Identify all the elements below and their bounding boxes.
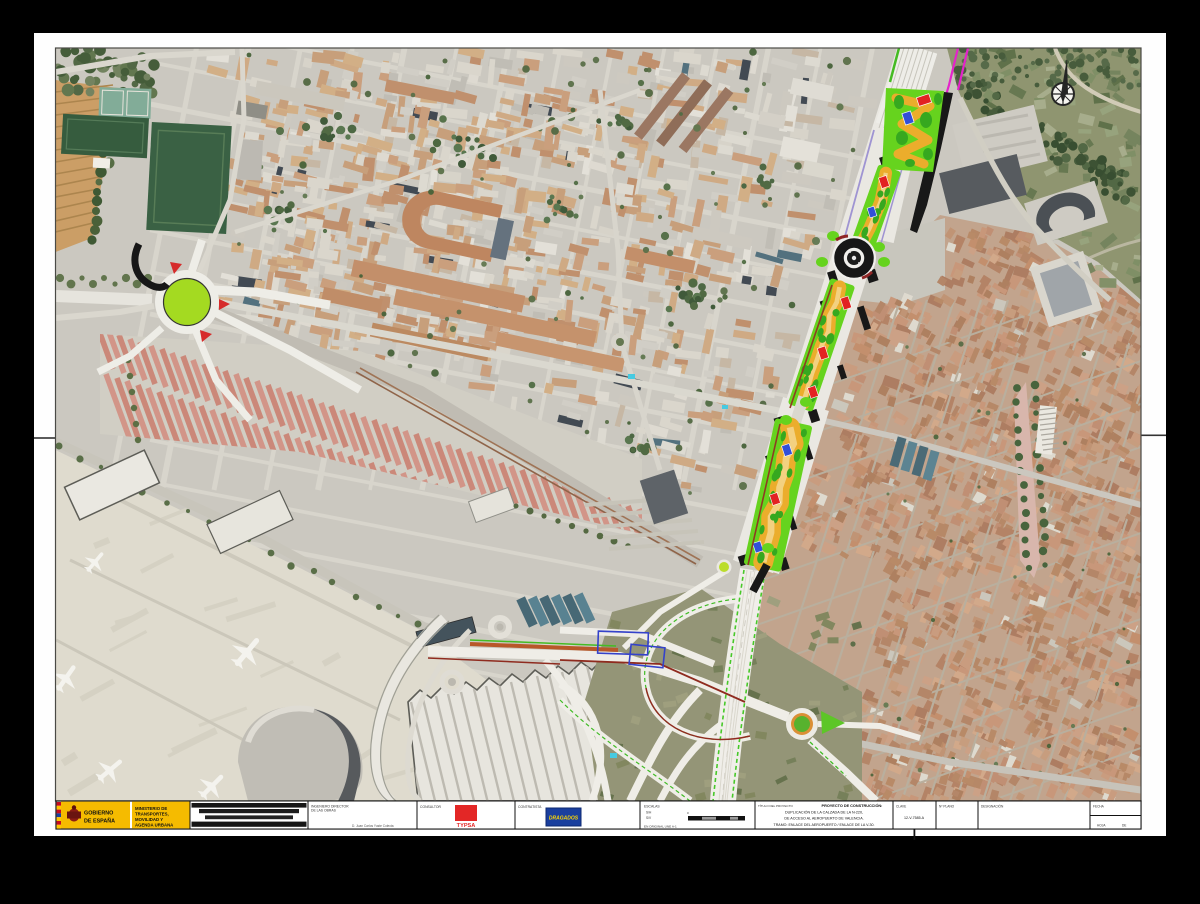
svg-text:CONSULTOR: CONSULTOR bbox=[420, 805, 442, 809]
svg-text:Nº PLANO: Nº PLANO bbox=[939, 805, 955, 809]
svg-text:S/V: S/V bbox=[646, 816, 652, 820]
svg-text:TYPSA: TYPSA bbox=[457, 823, 476, 829]
svg-text:TÍTULO DEL PROYECTO: TÍTULO DEL PROYECTO bbox=[758, 804, 794, 808]
svg-text:D. Juan Carlos Yuste Colecta: D. Juan Carlos Yuste Colecta bbox=[352, 824, 394, 828]
svg-text:ESCALAS: ESCALAS bbox=[644, 805, 660, 809]
svg-text:DRAGADOS: DRAGADOS bbox=[549, 816, 579, 822]
svg-text:MINISTERIO DE: MINISTERIO DE bbox=[135, 806, 167, 811]
svg-text:EN ORIGINAL UNE A-1: EN ORIGINAL UNE A-1 bbox=[644, 825, 677, 829]
svg-text:GOBIERNO: GOBIERNO bbox=[84, 811, 113, 817]
svg-text:S/H: S/H bbox=[646, 811, 652, 815]
svg-text:TRAMO: ENLACE DEL AEROPUERTO /: TRAMO: ENLACE DEL AEROPUERTO / ENLACE DE… bbox=[774, 823, 875, 827]
svg-text:DE LAS OBRAS: DE LAS OBRAS bbox=[311, 809, 337, 813]
svg-text:CONTRATISTA: CONTRATISTA bbox=[518, 805, 542, 809]
svg-text:DE ACCESO AL AEROPUERTO DE VAL: DE ACCESO AL AEROPUERTO DE VALENCIA. bbox=[784, 816, 863, 820]
svg-text:AGENDA URBANA: AGENDA URBANA bbox=[135, 823, 173, 828]
svg-text:12-V-7585.A: 12-V-7585.A bbox=[904, 816, 925, 820]
svg-text:DE ESPAÑA: DE ESPAÑA bbox=[84, 818, 115, 825]
svg-text:DUPLICACIÓN DE LA CALZADA DE L: DUPLICACIÓN DE LA CALZADA DE LA N-220, bbox=[785, 809, 863, 814]
svg-text:CLAVE: CLAVE bbox=[896, 805, 906, 809]
svg-text:MOVILIDAD Y: MOVILIDAD Y bbox=[135, 817, 163, 822]
svg-text:TRANSPORTES,: TRANSPORTES, bbox=[135, 812, 169, 817]
svg-text:HOJA: HOJA bbox=[1097, 824, 1106, 828]
svg-text:PROYECTO DE CONSTRUCCIÓN:: PROYECTO DE CONSTRUCCIÓN: bbox=[822, 803, 883, 808]
svg-text:DE: DE bbox=[1122, 824, 1126, 828]
svg-text:DESIGNACIÓN: DESIGNACIÓN bbox=[981, 804, 1004, 809]
svg-text:FECHA: FECHA bbox=[1093, 805, 1105, 809]
